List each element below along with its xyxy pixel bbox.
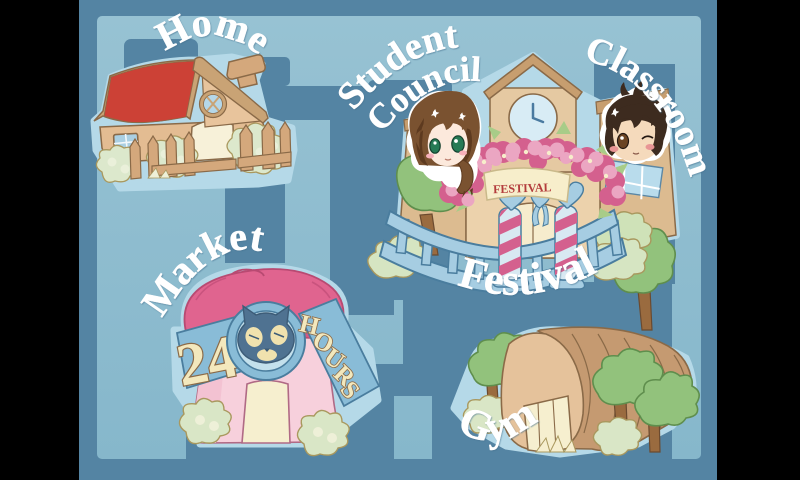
svg-text:FESTIVAL: FESTIVAL [493, 180, 552, 196]
